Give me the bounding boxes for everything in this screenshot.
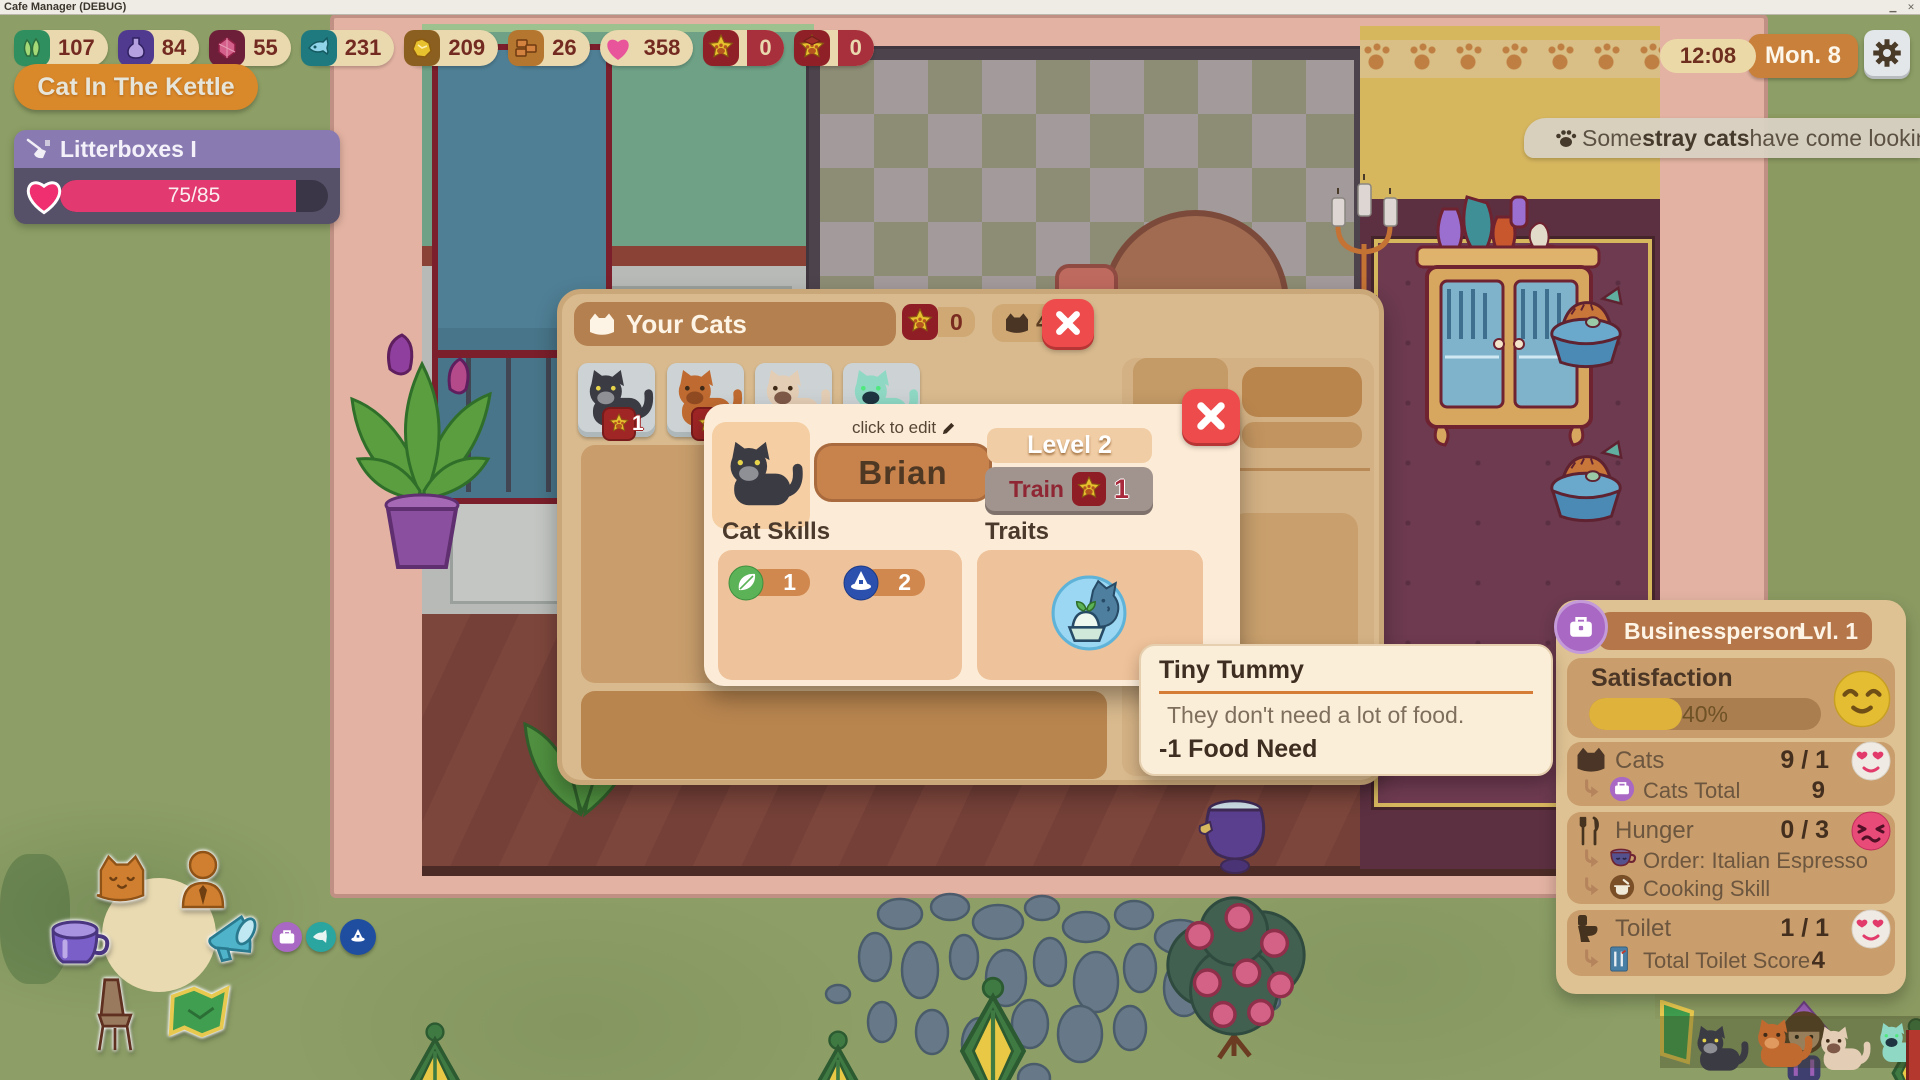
resource-value: 107 bbox=[58, 35, 95, 61]
sub-arrow-icon bbox=[1583, 949, 1603, 969]
cat-food-bowl[interactable] bbox=[1542, 436, 1630, 531]
relieved-emoji bbox=[1833, 670, 1891, 728]
cat-icon bbox=[1004, 312, 1030, 334]
gold-icon bbox=[404, 30, 440, 66]
cat-food-bowl[interactable] bbox=[1542, 282, 1630, 377]
customer-radial-menu bbox=[40, 840, 400, 1075]
window-title: Cafe Manager (DEBUG) bbox=[4, 1, 126, 13]
clock-area: Mon. 8 12:08 bbox=[1660, 30, 1910, 78]
modal-title: Your Cats bbox=[626, 309, 747, 340]
cooking-pot-icon bbox=[1609, 874, 1635, 900]
substat-value: 4 bbox=[1812, 947, 1825, 975]
resource-value: 0 bbox=[838, 30, 874, 66]
sick-emoji bbox=[1851, 811, 1891, 851]
stat-value: 1 / 1 bbox=[1780, 914, 1829, 943]
task-title: Litterboxes I bbox=[60, 136, 197, 163]
settings-button[interactable] bbox=[1864, 30, 1910, 76]
black-cat-sprite bbox=[717, 437, 805, 515]
spinach-icon bbox=[14, 30, 50, 66]
satisfaction-card: Satisfaction 40% bbox=[1567, 658, 1895, 738]
tooltip-title: Tiny Tummy bbox=[1159, 656, 1533, 685]
cat-thumbnail-black[interactable]: 1 bbox=[578, 363, 655, 437]
megaphone-button[interactable] bbox=[203, 905, 267, 967]
substat-label: Cats Total bbox=[1643, 778, 1740, 804]
train-button[interactable]: Train 1 bbox=[985, 467, 1153, 511]
stat-value: 9 / 1 bbox=[1780, 746, 1829, 775]
heart-eyes-emoji bbox=[1851, 741, 1891, 781]
sub-arrow-icon bbox=[1583, 849, 1603, 869]
resource-value: 26 bbox=[552, 35, 576, 61]
tooltip-divider bbox=[1159, 691, 1533, 694]
cat-skills-panel: 1 2 bbox=[718, 550, 962, 680]
chair-button[interactable] bbox=[90, 975, 140, 1055]
resource-bricks: 26 bbox=[508, 30, 589, 66]
businessperson-menu-button[interactable] bbox=[176, 848, 230, 912]
resource-value: 358 bbox=[644, 35, 681, 61]
stat-value: 0 / 3 bbox=[1780, 816, 1829, 845]
resource-star-cap: 0 bbox=[794, 30, 874, 66]
map-button[interactable] bbox=[165, 982, 233, 1042]
notification-text: Some bbox=[1582, 125, 1642, 152]
resource-value: 231 bbox=[345, 35, 382, 61]
resource-spinach: 107 bbox=[14, 30, 108, 66]
satisfaction-label: Satisfaction bbox=[1591, 664, 1733, 693]
tiny-tummy-trait-icon[interactable] bbox=[1050, 574, 1128, 652]
modal-close-button[interactable] bbox=[1042, 299, 1094, 347]
toilet-icon bbox=[1575, 914, 1601, 944]
cat-skills-title: Cat Skills bbox=[722, 518, 830, 546]
toilet-score-icon bbox=[1609, 946, 1629, 972]
star-cap-icon bbox=[794, 30, 830, 66]
fish-icon bbox=[306, 922, 336, 952]
substat-label: Order: Italian Espresso bbox=[1643, 848, 1868, 874]
substat-value: 9 bbox=[1812, 777, 1825, 805]
resource-value: 209 bbox=[448, 35, 485, 61]
window-minimize-button[interactable]: ▁ bbox=[1888, 3, 1898, 12]
magic-skill-icon bbox=[843, 565, 879, 601]
stat-label: Cats bbox=[1615, 747, 1664, 775]
briefcase-icon bbox=[272, 922, 302, 952]
fish-icon bbox=[301, 30, 337, 66]
star-paw-icon bbox=[902, 304, 938, 340]
paw-wallpaper-border bbox=[1360, 40, 1660, 78]
stray-black-cat[interactable] bbox=[1688, 1022, 1750, 1078]
cat-icon bbox=[588, 312, 616, 336]
potted-plant bbox=[330, 309, 515, 574]
tooltip-description: They don't need a lot of food. bbox=[1159, 702, 1533, 729]
heart-icon bbox=[22, 174, 66, 216]
tooltip-effect: -1 Food Need bbox=[1159, 735, 1317, 764]
espresso-cup-icon bbox=[1609, 846, 1637, 870]
customer-title: Businessperson bbox=[1624, 618, 1803, 645]
rose-bush bbox=[1150, 874, 1318, 1064]
stray-cats-group bbox=[1660, 1000, 1920, 1080]
close-icon bbox=[1055, 310, 1081, 336]
cats-stat-card: Cats 9 / 1 Cats Total 9 bbox=[1567, 742, 1895, 806]
herb-skill-icon bbox=[728, 565, 764, 601]
task-progress-text: 75/85 bbox=[60, 180, 328, 212]
notification-banner[interactable]: Some stray cats have come looking for bbox=[1524, 118, 1920, 158]
resource-value: 84 bbox=[162, 35, 186, 61]
briefcase-icon bbox=[1554, 600, 1608, 654]
resource-gem: 55 bbox=[209, 30, 290, 66]
gem-icon bbox=[209, 30, 245, 66]
heart-eyes-emoji bbox=[1851, 909, 1891, 949]
cauldron bbox=[1190, 794, 1280, 879]
star-paw-icon bbox=[703, 30, 739, 66]
date-pill: Mon. 8 bbox=[1748, 34, 1858, 78]
edit-name-hint[interactable]: click to edit bbox=[804, 418, 1004, 438]
customer-panel: Businessperson Lvl. 1 Satisfaction 40% C… bbox=[1556, 600, 1906, 994]
garden-lantern bbox=[800, 1028, 876, 1080]
sub-arrow-icon bbox=[1583, 779, 1603, 799]
resource-star-paw: 0 bbox=[703, 30, 783, 66]
briefcase-icon bbox=[1609, 776, 1635, 802]
cat-portrait bbox=[712, 422, 810, 529]
trait-tooltip: Tiny Tummy They don't need a lot of food… bbox=[1139, 644, 1553, 776]
sub-arrow-icon bbox=[1583, 877, 1603, 897]
star-paw-icon bbox=[1072, 472, 1106, 506]
resource-value: 55 bbox=[253, 35, 277, 61]
star-points-value: 0 bbox=[938, 307, 975, 337]
heart-icon bbox=[600, 30, 636, 66]
coffee-cup-button[interactable] bbox=[45, 915, 111, 973]
cutlery-icon bbox=[1575, 816, 1603, 846]
customer-header: Businessperson Lvl. 1 bbox=[1598, 612, 1872, 650]
garden-lantern bbox=[398, 1020, 472, 1080]
substat-label: Cooking Skill bbox=[1643, 876, 1770, 902]
close-icon bbox=[1196, 401, 1226, 431]
hunger-stat-card: Hunger 0 / 3 Order: Italian Espresso bbox=[1567, 812, 1895, 904]
info-slot bbox=[1242, 422, 1362, 448]
modal-footer-panel bbox=[581, 691, 1107, 779]
window-close-button[interactable]: ✕ bbox=[1906, 3, 1916, 12]
witch-hat-icon bbox=[340, 919, 376, 955]
broom-icon bbox=[26, 138, 52, 160]
resource-potion: 84 bbox=[118, 30, 199, 66]
game-screen: Cafe Manager (DEBUG) ▁ ✕ bbox=[0, 0, 1920, 1080]
resource-fish: 231 bbox=[301, 30, 395, 66]
resource-gold: 209 bbox=[404, 30, 498, 66]
task-tracker[interactable]: Litterboxes I 75/85 bbox=[14, 130, 340, 224]
pencil-icon bbox=[941, 421, 956, 436]
stray-orange-cat[interactable] bbox=[1748, 1012, 1814, 1078]
cat-icon bbox=[1575, 746, 1607, 773]
event-button[interactable]: Cat In The Kettle bbox=[14, 64, 258, 110]
modal-header: Your Cats bbox=[574, 302, 896, 346]
paw-icon bbox=[1554, 128, 1578, 148]
level-pill: Level 2 bbox=[987, 428, 1152, 463]
satisfaction-value: 40% bbox=[1589, 698, 1821, 730]
cat-menu-button[interactable] bbox=[95, 853, 149, 903]
popup-close-button[interactable] bbox=[1182, 389, 1240, 443]
garden-lantern bbox=[950, 974, 1036, 1080]
resource-bar: 107 84 55 231 209 26 bbox=[14, 30, 874, 66]
notification-text: have come looking for bbox=[1750, 125, 1920, 152]
time-pill: 12:08 bbox=[1660, 39, 1756, 73]
brick-icon bbox=[508, 30, 544, 66]
substat-label: Total Toilet Score bbox=[1643, 948, 1810, 974]
resource-value: 0 bbox=[747, 30, 783, 66]
star-paw-icon bbox=[602, 407, 636, 441]
toilet-stat-card: Toilet 1 / 1 Total Toilet Score 4 bbox=[1567, 910, 1895, 976]
cat-name-input[interactable]: Brian bbox=[814, 443, 992, 502]
notification-bold-text: stray cats bbox=[1642, 125, 1749, 152]
window-titlebar: Cafe Manager (DEBUG) ▁ ✕ bbox=[0, 0, 1920, 15]
customer-level: Lvl. 1 bbox=[1799, 618, 1858, 645]
star-points-badge: 0 bbox=[902, 304, 975, 340]
stray-siamese-cat[interactable] bbox=[1812, 1022, 1872, 1078]
stat-label: Hunger bbox=[1615, 817, 1694, 845]
resource-hearts: 358 bbox=[600, 30, 694, 66]
info-slot bbox=[1242, 367, 1362, 417]
gear-icon bbox=[1872, 38, 1902, 68]
traits-title: Traits bbox=[985, 518, 1049, 546]
stat-label: Toilet bbox=[1615, 915, 1671, 943]
red-prop bbox=[1906, 1030, 1920, 1080]
potion-icon bbox=[118, 30, 154, 66]
